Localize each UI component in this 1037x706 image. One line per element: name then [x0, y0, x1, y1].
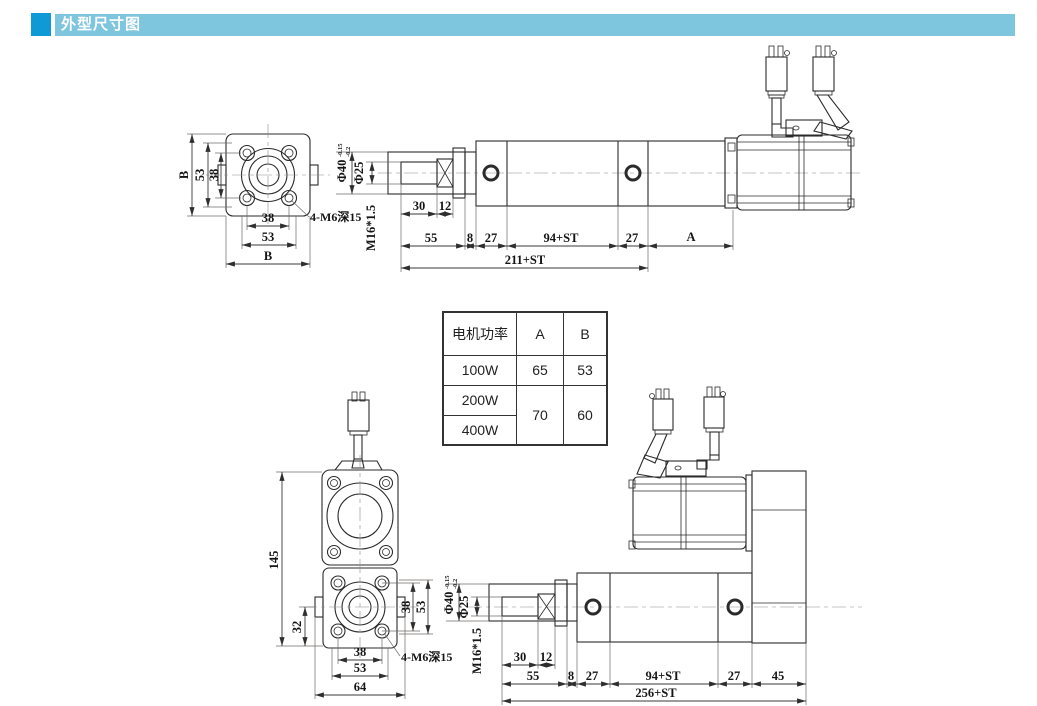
- dim-label-53-right: 53: [414, 601, 428, 614]
- bottom-motor-connector-left: [637, 389, 673, 478]
- dia40-label-top: Φ40 -0.15 -0.2: [335, 143, 352, 183]
- dim-label-27r-top: 27: [626, 231, 639, 245]
- dim-label-a-top: A: [686, 230, 695, 244]
- dim-label-8-top: 8: [467, 231, 473, 245]
- thread-label-bottom: M16*1.5: [470, 628, 484, 674]
- cell-b-100w: 53: [564, 355, 608, 385]
- svg-text:-0.2: -0.2: [345, 147, 352, 157]
- thread-label-top: M16*1.5: [364, 205, 378, 251]
- motor-power-table: 电机功率 A B 100W 65 53 200W 70 60 400W: [442, 311, 608, 446]
- dim-label-53-side: 53: [193, 169, 207, 182]
- dim-label-53-bottom2: 53: [354, 661, 367, 675]
- dim-label-total-bottom: 256+ST: [635, 686, 677, 700]
- thread-note-bottom: 4-M6深15: [401, 649, 452, 664]
- page: { "header": { "title": "外型尺寸图" }, "color…: [0, 0, 1037, 706]
- svg-text:Φ40: Φ40: [335, 160, 349, 183]
- dia25-label-bottom: Φ25: [457, 596, 471, 619]
- dim-label-27f-bottom: 27: [586, 669, 599, 683]
- bottom-motor-connector-right: [666, 387, 726, 476]
- table-header-b: B: [564, 312, 608, 355]
- dim-label-8-bottom: 8: [568, 669, 574, 683]
- cell-a-200-400w: 70: [517, 385, 564, 445]
- cell-a-100w: 65: [517, 355, 564, 385]
- dim-label-12-top: 12: [439, 199, 452, 213]
- svg-text:Φ40: Φ40: [442, 592, 456, 615]
- dim-label-b-side: B: [177, 171, 191, 179]
- bottom-length-dimensions: 55 8 27 94+ST 27 45 256+ST: [502, 626, 806, 705]
- dim-label-b-bottom: B: [264, 249, 272, 263]
- bottom-side-view: [468, 471, 862, 643]
- table-row: 200W 70 60: [443, 385, 607, 415]
- bottom-front-view: [303, 392, 417, 658]
- dim-label-30-bottom: 30: [514, 650, 527, 664]
- dim-label-38-right: 38: [399, 601, 413, 614]
- svg-text:-0.15: -0.15: [444, 575, 451, 589]
- svg-text:-0.2: -0.2: [452, 579, 459, 589]
- svg-text:-0.15: -0.15: [337, 143, 344, 157]
- table-header-a: A: [517, 312, 564, 355]
- table-row: 100W 65 53: [443, 355, 607, 385]
- cell-b-200-400w: 60: [564, 385, 608, 445]
- dia25-label-top: Φ25: [352, 162, 366, 185]
- dim-label-32: 32: [290, 621, 304, 634]
- bottom-front-dimensions: 145 32 38 53 38 53 64 4-M6深15: [267, 472, 452, 699]
- dim-label-12-bottom: 12: [540, 650, 553, 664]
- table-header-power: 电机功率: [443, 312, 517, 355]
- dim-label-total-top: 211+ST: [505, 253, 546, 267]
- dim-label-45: 45: [772, 669, 785, 683]
- dim-label-27f-top: 27: [485, 231, 498, 245]
- dim-label-38-bottom2: 38: [354, 645, 367, 659]
- dim-label-55-top: 55: [425, 231, 438, 245]
- dim-label-64: 64: [354, 680, 367, 694]
- dim-label-94st-top: 94+ST: [544, 231, 580, 245]
- dim-label-38-bottom: 38: [262, 211, 275, 225]
- dim-label-30-top: 30: [413, 199, 426, 213]
- dim-label-145: 145: [267, 551, 281, 570]
- dim-label-55-bottom: 55: [527, 669, 540, 683]
- cell-power-200w: 200W: [443, 385, 517, 415]
- cell-power-100w: 100W: [443, 355, 517, 385]
- cell-power-400w: 400W: [443, 415, 517, 445]
- dim-label-53-bottom: 53: [262, 230, 275, 244]
- top-motor-connector-right: [813, 46, 852, 139]
- thread-note-top: 4-M6深15: [310, 209, 361, 224]
- dim-label-38-side: 38: [207, 169, 221, 182]
- dim-label-27r-bottom: 27: [728, 669, 741, 683]
- dim-label-94st-bottom: 94+ST: [646, 669, 682, 683]
